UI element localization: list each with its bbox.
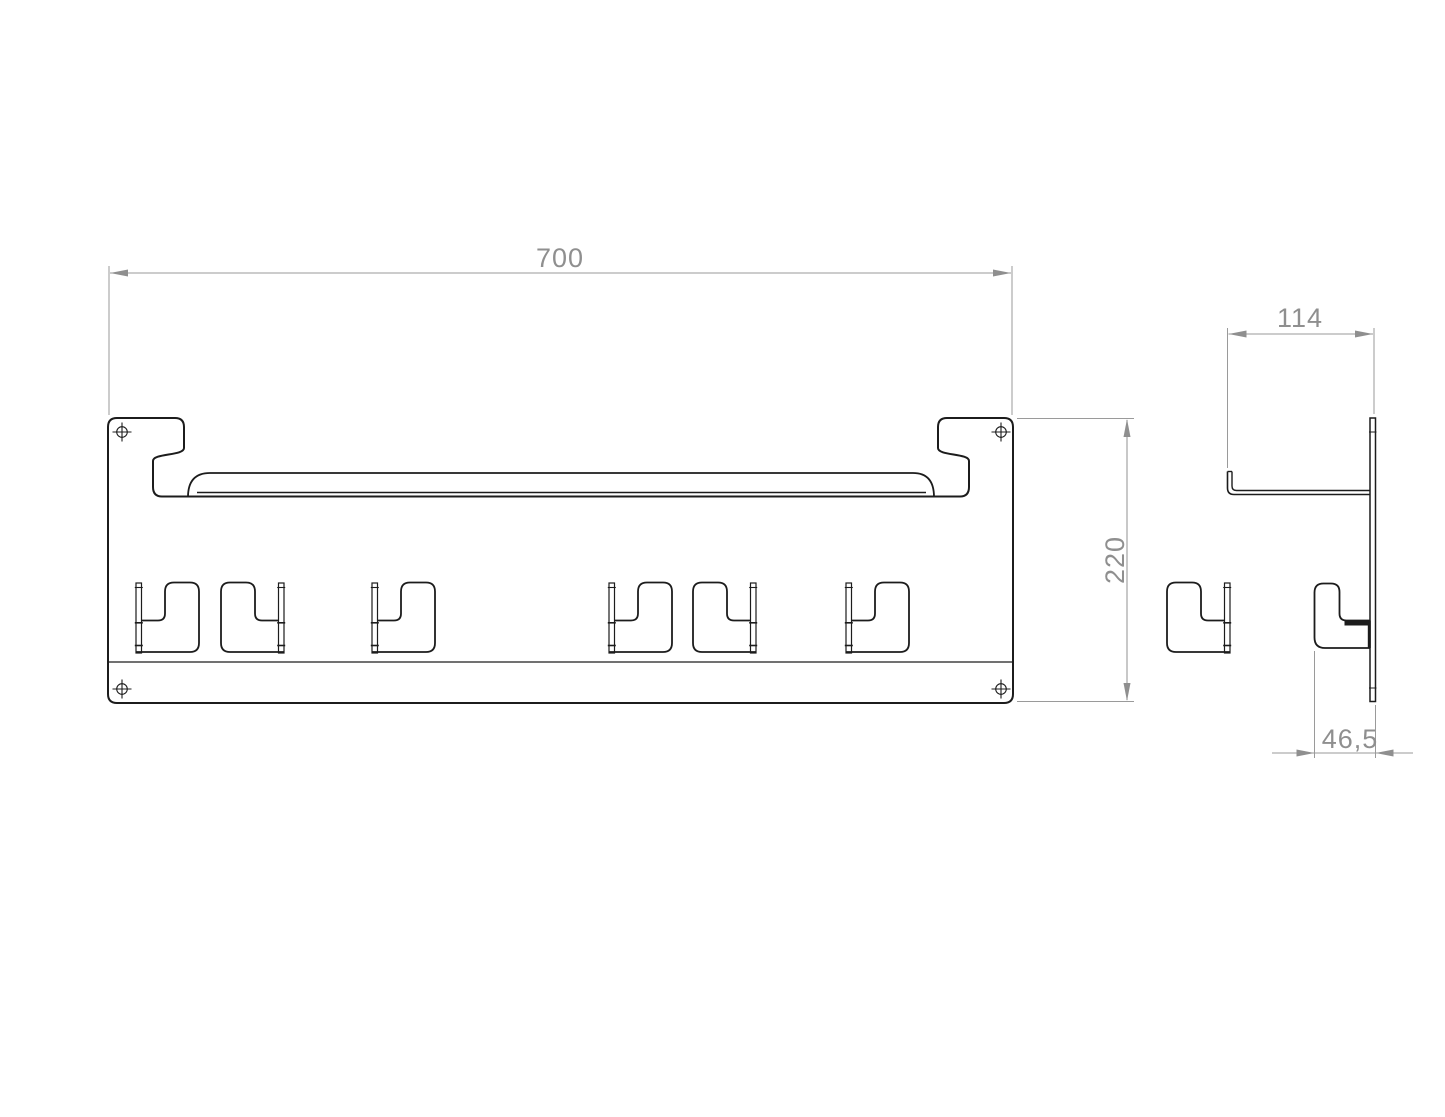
arrowhead-left <box>110 270 128 277</box>
hook-left <box>371 583 435 654</box>
side-hook-arm-edge <box>1345 621 1371 626</box>
dimension-width-700: 700 <box>109 243 1012 415</box>
hook-pair-4 <box>845 583 1445 654</box>
hook-pair-1 <box>135 583 285 654</box>
arrowhead-top <box>1124 419 1131 437</box>
hook-left <box>135 583 199 654</box>
arrowhead-right <box>993 270 1011 277</box>
hook-right <box>221 583 285 654</box>
side-plate <box>1370 418 1376 702</box>
arrowhead-left <box>1297 750 1315 757</box>
hook-right <box>1167 583 1231 654</box>
mounting-hole-bottom-left <box>113 680 132 699</box>
hook-left <box>845 583 909 654</box>
mounting-hole-top-right <box>992 423 1011 442</box>
hook-left <box>608 583 672 654</box>
dimension-hook-depth-46-5: 46,5 <box>1272 651 1413 758</box>
dimension-label-hook-depth: 46,5 <box>1322 724 1379 754</box>
hook-pair-3 <box>608 583 1231 654</box>
dimension-depth-114: 114 <box>1228 303 1375 468</box>
mounting-hole-bottom-right <box>992 680 1011 699</box>
dimension-height-220: 220 <box>1017 419 1134 702</box>
arrowhead-right <box>1355 331 1373 338</box>
side-hook <box>1315 584 1371 649</box>
front-view: 700 220 <box>108 243 1445 703</box>
shelf-bar-top-edge <box>188 473 934 497</box>
dimension-label-height: 220 <box>1100 536 1130 584</box>
side-view: 114 46,5 <box>1228 303 1414 758</box>
dimension-label-depth: 114 <box>1277 303 1323 333</box>
drawing-canvas: 700 220 <box>0 0 1445 1117</box>
arrowhead-left <box>1229 331 1247 338</box>
mounting-hole-top-left <box>113 423 132 442</box>
plate-outline <box>108 418 1013 703</box>
shelf-bar <box>188 473 934 497</box>
hook-pair-2 <box>371 583 757 654</box>
side-shelf <box>1228 472 1371 495</box>
technical-drawing: 700 220 <box>0 0 1445 1117</box>
hook-right <box>693 583 757 654</box>
mounting-holes <box>113 423 1011 699</box>
dimension-label-width: 700 <box>536 243 584 273</box>
arrowhead-bottom <box>1124 683 1131 701</box>
